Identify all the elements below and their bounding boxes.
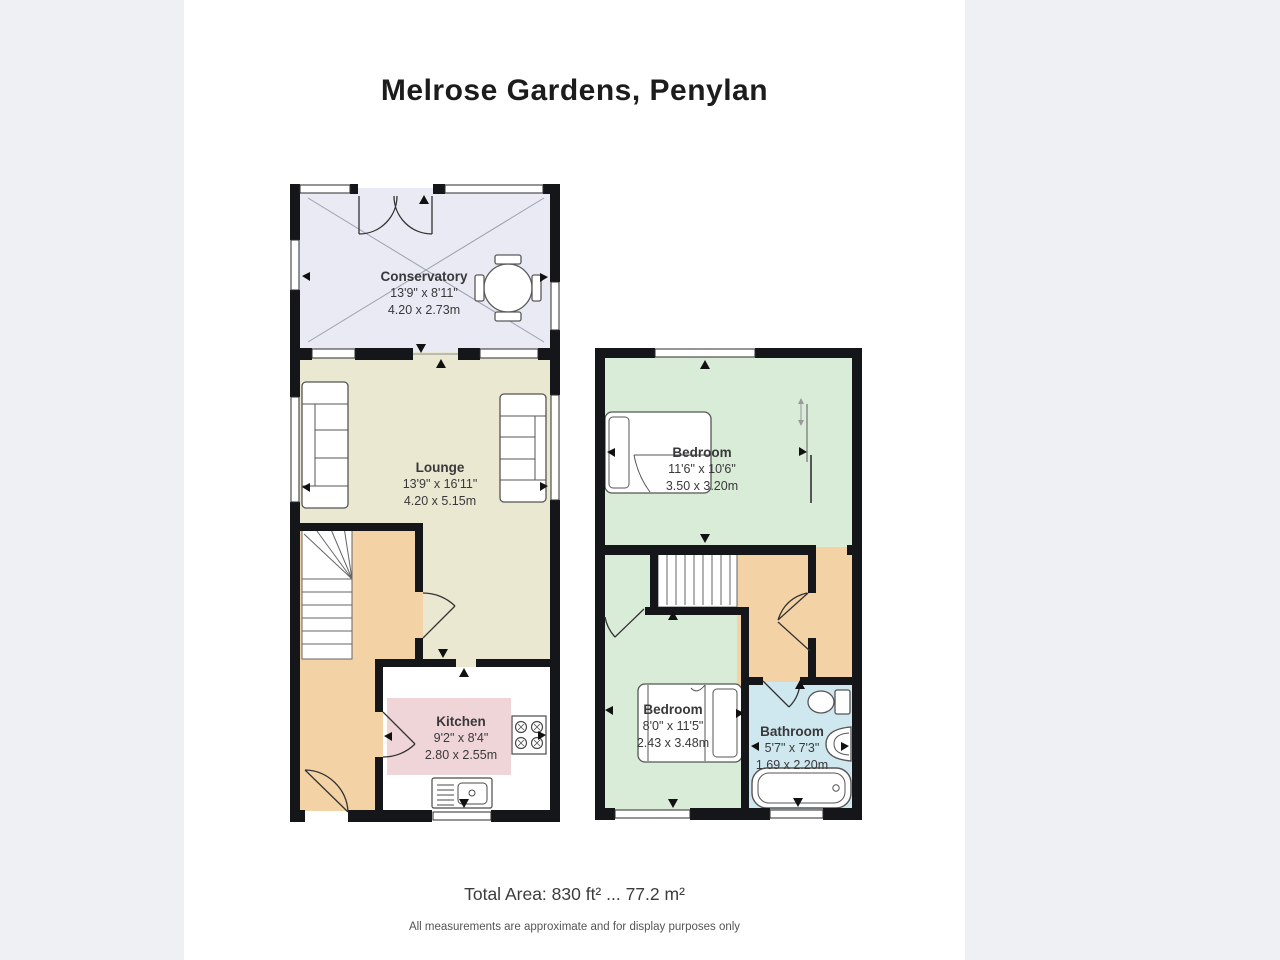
room-name: Bedroom: [583, 701, 763, 718]
front-door-opening: [305, 811, 348, 822]
page-title: Melrose Gardens, Penylan: [184, 74, 965, 108]
window: [480, 349, 538, 358]
window: [770, 810, 823, 818]
window: [551, 282, 559, 330]
room-label-bathroom: Bathroom 5'7" x 7'3" 1.69 x 2.20m: [702, 723, 882, 774]
room-label-conservatory: Conservatory 13'9" x 8'11" 4.20 x 2.73m: [334, 268, 514, 319]
room-label-lounge: Lounge 13'9" x 16'11" 4.20 x 5.15m: [350, 459, 530, 510]
floorplan-page: Melrose Gardens, Penylan: [184, 0, 965, 960]
window: [655, 349, 755, 357]
room-label-kitchen: Kitchen 9'2" x 8'4" 2.80 x 2.55m: [371, 713, 551, 764]
room-label-bedroom1: Bedroom 11'6" x 10'6" 3.50 x 3.20m: [612, 444, 792, 495]
room-size-imperial: 11'6" x 10'6": [612, 461, 792, 478]
toilet-icon: [808, 690, 850, 714]
bathtub-icon: [752, 768, 851, 808]
window: [291, 240, 299, 290]
room-size-metric: 1.69 x 2.20m: [702, 757, 882, 774]
stairs-first-icon: [658, 549, 737, 607]
room-size-imperial: 9'2" x 8'4": [371, 730, 551, 747]
window: [445, 185, 543, 193]
room-size-metric: 2.80 x 2.55m: [371, 747, 551, 764]
stairs-ground-icon: [302, 527, 352, 659]
disclaimer-text: All measurements are approximate and for…: [184, 921, 965, 933]
window: [312, 349, 355, 358]
room-name: Kitchen: [371, 713, 551, 730]
landing-floor: [737, 547, 854, 685]
room-size-metric: 4.20 x 5.15m: [350, 493, 530, 510]
window: [433, 812, 491, 820]
room-name: Conservatory: [334, 268, 514, 285]
room-size-imperial: 13'9" x 16'11": [350, 476, 530, 493]
room-size-imperial: 5'7" x 7'3": [702, 740, 882, 757]
window: [551, 395, 559, 500]
room-size-imperial: 13'9" x 8'11": [334, 285, 514, 302]
room-name: Bedroom: [612, 444, 792, 461]
window: [615, 810, 690, 818]
room-name: Bathroom: [702, 723, 882, 740]
total-area-text: Total Area: 830 ft² ... 77.2 m²: [184, 884, 965, 905]
window: [300, 185, 350, 193]
room-size-metric: 4.20 x 2.73m: [334, 302, 514, 319]
window: [291, 397, 299, 502]
room-name: Lounge: [350, 459, 530, 476]
room-size-metric: 3.50 x 3.20m: [612, 478, 792, 495]
